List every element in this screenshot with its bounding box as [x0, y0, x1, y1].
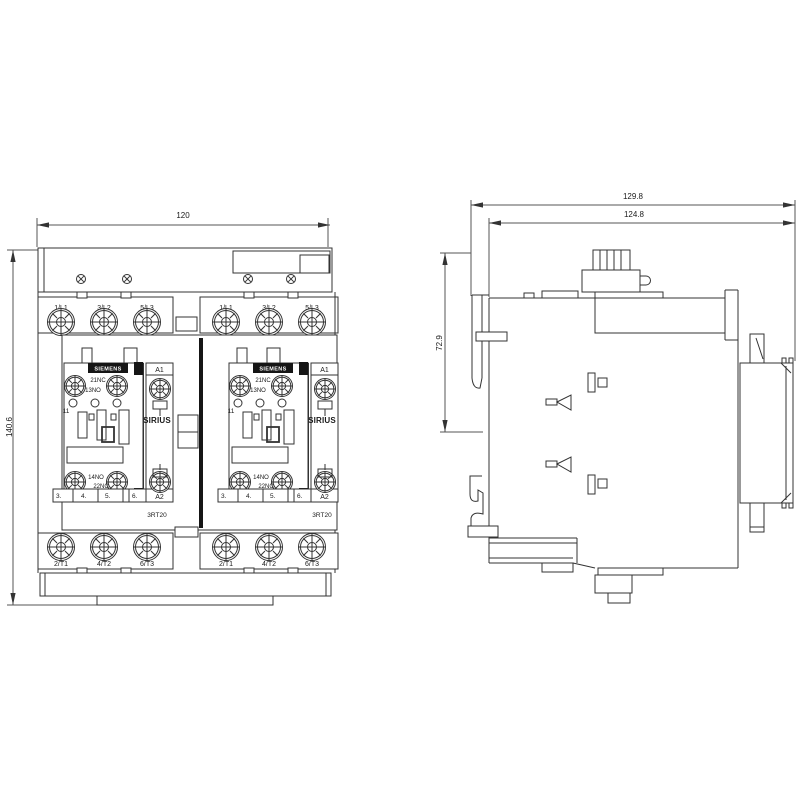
mounting-base: [40, 573, 331, 605]
pole-number: 6.: [132, 493, 138, 500]
aux-index-label: 11: [228, 408, 235, 415]
model-label: 3RT20: [147, 512, 167, 519]
coil-terminal-a1: A1: [320, 367, 329, 374]
aux-index-label: 11: [63, 408, 70, 415]
terminal-label: 6/T3: [140, 561, 154, 568]
pole-number: 3.: [221, 493, 227, 500]
aux-label-21nc: 21NC: [255, 378, 271, 384]
side-body: [489, 290, 738, 572]
coil-terminal-a2: A2: [155, 494, 164, 501]
contactor-unit-right: SIEMENS A1 A2 SIRIUS 21NC 13NO 14NO 22NC…: [218, 362, 338, 519]
dim-width-label: 120: [176, 211, 190, 220]
aux-label-21nc: 21NC: [90, 378, 106, 384]
terminal-label: 6/T3: [305, 561, 319, 568]
terminal-label: 2/T1: [219, 561, 233, 568]
body-detail-marks: [546, 373, 607, 494]
dimension-upper-height: 72.9: [435, 253, 483, 432]
aux-label-14no: 14NO: [253, 475, 269, 481]
pole-number: 5.: [270, 493, 276, 500]
side-view: 129.8 124.8 72.9: [435, 192, 795, 603]
brand-label: SIEMENS: [259, 367, 286, 373]
coil-terminal-block-side: [582, 250, 663, 298]
aux-label-13no: 13NO: [250, 388, 266, 394]
front-view: 120 140.6 1/L1 3/L2 5/L3 1/L1 3/L2 5/L3: [5, 211, 338, 605]
contactor-unit-left: SIEMENS A1 A2 SIRIUS 21NC 13NO 14NO 22NC…: [53, 362, 173, 519]
terminal-label: 4/T2: [262, 561, 276, 568]
pole-number: 4.: [81, 493, 87, 500]
din-rail-bracket: [468, 295, 507, 537]
pole-number: 5.: [105, 493, 111, 500]
coil-terminal-a2: A2: [320, 494, 329, 501]
dim-upper-height-label: 72.9: [435, 335, 444, 351]
pole-number: 6.: [297, 493, 303, 500]
coil-terminal-a1: A1: [155, 367, 164, 374]
dimension-width: 120: [37, 211, 330, 247]
bottom-terminal-block-side: [595, 568, 663, 603]
contactor-dimension-drawing: 120 140.6 1/L1 3/L2 5/L3 1/L1 3/L2 5/L3: [0, 0, 800, 800]
series-label: SIRIUS: [308, 416, 336, 425]
pole-number: 3.: [56, 493, 62, 500]
front-face-block-side: [740, 334, 793, 532]
dim-rail-depth-label: 124.8: [624, 210, 645, 219]
pole-number: 4.: [246, 493, 252, 500]
top-terminal-strips: 1/L1 3/L2 5/L3 1/L1 3/L2 5/L3: [38, 292, 338, 336]
series-label: SIRIUS: [143, 416, 171, 425]
aux-label-14no: 14NO: [88, 475, 104, 481]
aux-label-13no: 13NO: [85, 388, 101, 394]
busbar-cover: [38, 248, 332, 292]
drawing-canvas: 120 140.6 1/L1 3/L2 5/L3 1/L1 3/L2 5/L3: [0, 0, 800, 800]
model-label: 3RT20: [312, 512, 332, 519]
terminal-label: 4/T2: [97, 561, 111, 568]
bottom-terminal-strips: 2/T1 4/T2 6/T3 2/T1 4/T2 6/T3: [38, 527, 338, 574]
terminal-label: 2/T1: [54, 561, 68, 568]
brand-label: SIEMENS: [94, 367, 121, 373]
dim-height-label: 140.6: [5, 416, 14, 437]
dim-overall-depth-label: 129.8: [623, 192, 644, 201]
